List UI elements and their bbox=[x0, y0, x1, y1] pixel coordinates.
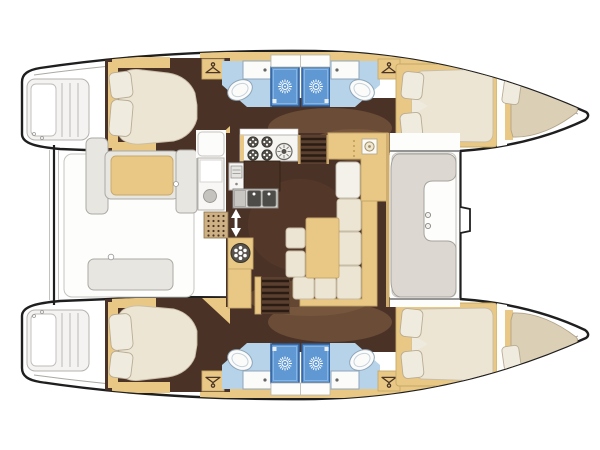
deck-fitting bbox=[174, 182, 179, 187]
floor-plan-stage bbox=[0, 0, 600, 450]
stairs-to-port-hull bbox=[298, 135, 329, 164]
side-deck bbox=[196, 130, 226, 158]
sofa-cushion bbox=[293, 277, 314, 299]
galley-cabinet bbox=[198, 158, 224, 210]
forward-bulkhead bbox=[386, 133, 390, 307]
aft-crossbeam bbox=[50, 145, 59, 305]
bench-cushion bbox=[111, 156, 173, 195]
stairs-to-starboard-hull bbox=[255, 277, 290, 314]
cockpit-bench-aft-starboard bbox=[88, 259, 173, 290]
bowsprit-fitting bbox=[461, 207, 471, 233]
aft-cockpit bbox=[64, 138, 197, 297]
forward-crossbeam bbox=[461, 150, 471, 300]
forward-cockpit bbox=[390, 133, 460, 307]
stove bbox=[240, 135, 298, 161]
floor-plan-svg bbox=[0, 0, 600, 450]
galley-island bbox=[244, 161, 280, 191]
sofa-cushion bbox=[337, 199, 361, 231]
round-fixture-cabinet bbox=[228, 238, 253, 269]
sofa-cushion bbox=[337, 266, 361, 299]
nav-seat bbox=[336, 162, 360, 198]
faucet-dot bbox=[268, 193, 271, 196]
salon-table bbox=[306, 218, 339, 278]
stool bbox=[286, 228, 305, 248]
sofa-cushion bbox=[315, 277, 336, 299]
cockpit-bench-aft-port bbox=[105, 151, 179, 199]
fridge bbox=[229, 163, 244, 190]
waste-bin bbox=[204, 190, 217, 203]
cockpit-side-module bbox=[176, 150, 197, 213]
wok-burner bbox=[276, 144, 292, 160]
faucet-dot bbox=[253, 193, 256, 196]
aft-salon-cabinet bbox=[228, 269, 251, 308]
cup-holder bbox=[425, 212, 430, 217]
nav-station bbox=[328, 133, 388, 201]
entry-grate bbox=[204, 212, 228, 238]
stool bbox=[286, 251, 305, 277]
deck-fitting bbox=[108, 254, 114, 260]
cup-holder bbox=[425, 223, 430, 228]
salon bbox=[196, 129, 400, 316]
double-sink bbox=[233, 189, 278, 208]
sofa-cushion bbox=[337, 232, 361, 265]
